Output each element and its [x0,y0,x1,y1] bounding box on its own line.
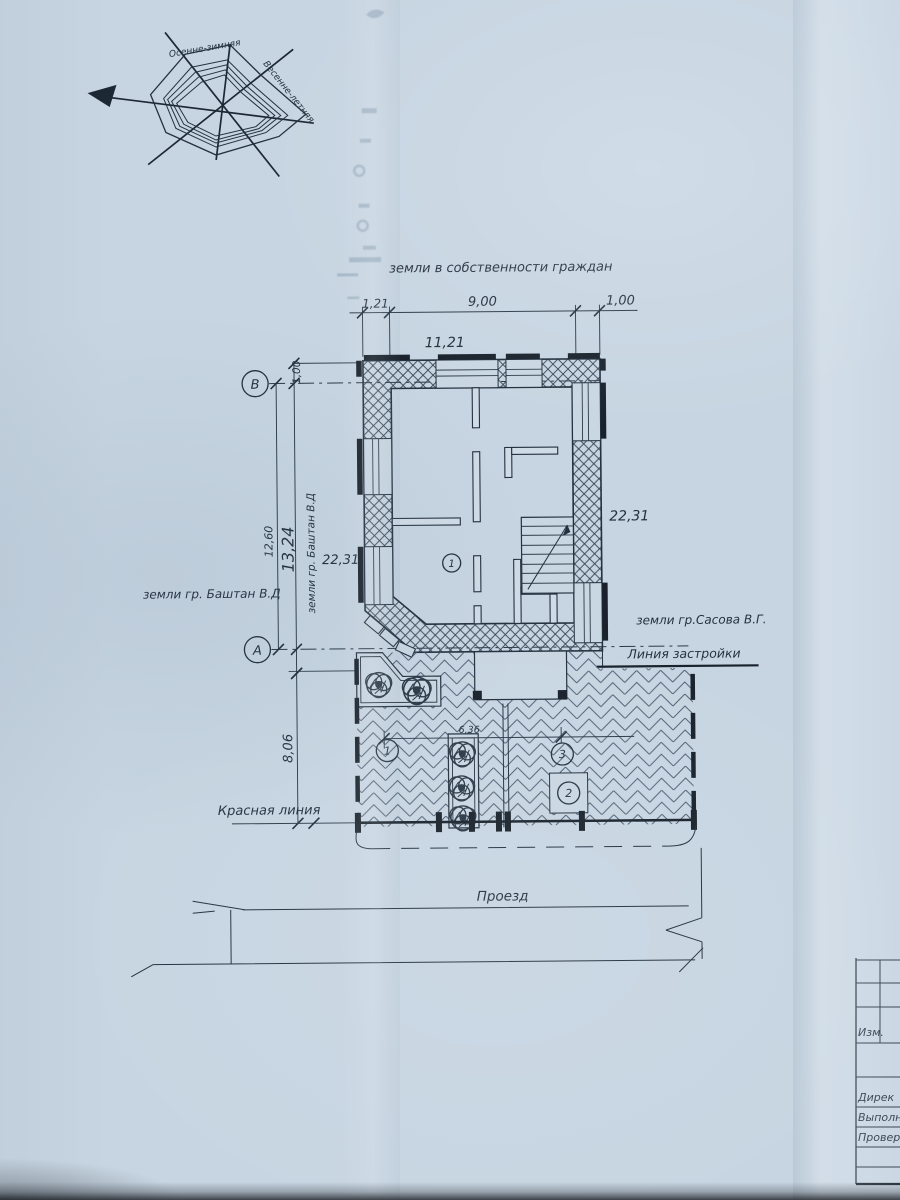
dim-depth-left: 22,31 [322,553,359,568]
title-block: Изм. Дирек Выполн Провер [856,958,900,1184]
label-red-line: Красная линия [218,803,321,819]
courtyard: 6,36 1 3 2 [356,650,694,832]
wind-rose-label-autumn-winter: Осенне-зимняя [168,38,241,60]
title-block-row1: Дирек [857,1091,894,1104]
dim-left-total: 13,24 [278,526,297,572]
room-marker-label: 1 [448,559,454,570]
yard-marker-1-label: 1 [384,745,391,758]
top-dimension-chain: 1,21 9,00 1,00 11,21 [349,293,638,357]
site-plan-drawing: Осенне-зимняя Весенне-летняя земли в соб… [0,0,900,1200]
dim-top-seg2: 9,00 [468,295,497,310]
dim-front-setback: 8,06 [281,734,296,763]
label-owner-left-vertical: земли гр. Баштан В.Д [305,493,318,614]
building-line-ext [289,671,357,672]
dim-top-total: 11,21 [425,335,465,351]
label-owner-right: земли гр.Сасова В.Г. [636,612,766,627]
wind-rose-polygons [150,44,306,155]
building-line-stroke [597,665,759,666]
label-ownership: земли в собственности граждан [389,260,613,277]
dim-depth-right: 22,31 [609,508,649,524]
title-block-row2: Выполн [858,1111,900,1124]
building-plan: 1 [359,356,606,669]
axis-label-bottom: А [252,644,262,659]
axis-label-top: В [251,378,260,393]
label-road: Проезд [477,888,529,904]
title-block-row3: Провер [858,1131,900,1144]
stairs [521,517,574,593]
yard-marker-3-label: 3 [559,748,566,761]
title-block-change-col: Изм. [858,1026,884,1039]
bleed-through-marks [335,10,387,298]
dim-yard-span: 6,36 [459,725,480,736]
label-building-line: Линия застройки [626,645,740,661]
room-marker: 1 [443,554,461,572]
yard-marker-2-label: 2 [565,787,572,800]
blueprint-page: Осенне-зимняя Весенне-летняя земли в соб… [0,0,900,1200]
yard-marker-2: 2 [550,773,588,813]
dim-offset-b: 1,00 [291,360,303,384]
wind-rose-west-arrow-icon [87,85,116,107]
boundary-left [357,659,358,819]
label-owner-left: земли гр. Баштан В.Д [143,586,281,601]
porch [472,651,566,700]
dim-left-inner: 12,60 [262,526,275,558]
road: Проезд [130,822,703,977]
dim-top-seg1: 1,21 [362,297,389,311]
wind-rose: Осенне-зимняя Весенне-летняя [87,31,317,178]
dim-top-seg3: 1,00 [606,293,635,308]
